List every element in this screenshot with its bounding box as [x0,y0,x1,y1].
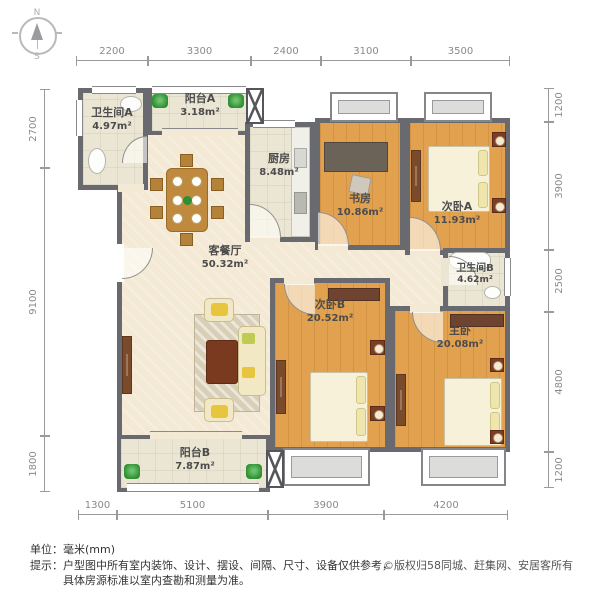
bedroom-b-bay-window [283,448,370,486]
plant-icon [246,464,262,479]
dining-chair [180,154,193,167]
study-desk [324,142,388,172]
study-bay-window [330,92,398,122]
sofa [238,326,266,396]
kitchen-stove [294,192,307,214]
balcony-a-x-window [246,88,264,124]
dim-left-1: 2700 [44,89,45,168]
compass-west-tick [12,32,18,34]
nightstand [492,132,506,147]
dim-left-3: 1800 [44,436,45,492]
bedroom-b-bay-window-glass [291,456,362,478]
compass-south-label: S [34,52,40,62]
coffee-table [206,340,238,384]
pillow [490,382,500,409]
compass-east-tick [56,32,62,34]
bedroom-b-cabinet [276,360,286,414]
bedroom-a-wardrobe [411,150,421,202]
sofa-pillow [242,367,255,378]
armchair [204,298,234,322]
compass-tail [37,40,38,49]
master-cabinet [396,374,406,426]
nightstand [490,430,504,444]
bedroom-a-bay-window [424,92,492,122]
plate [191,195,202,206]
room-label-study: 书房 10.86m² [318,192,402,219]
room-label-bathroom-a: 卫生间A 4.97m² [76,106,148,133]
bathroom-a-window [92,86,136,94]
room-label-balcony-b: 阳台B 7.87m² [160,446,230,473]
plate [191,176,202,187]
master-bay-window [421,448,506,486]
dim-right-2: 3900 [548,122,549,250]
plate [172,176,183,187]
room-label-kitchen: 厨房 8.48m² [248,152,310,179]
room-label-living-dining: 客餐厅 50.32m² [172,244,278,271]
compass-needle-icon [31,23,43,40]
room-label-balcony-a: 阳台A 3.18m² [158,92,242,119]
armchair-cushion [211,405,228,418]
table-plant-icon [183,196,192,205]
study-bay-window-glass [338,100,390,114]
plant-icon [124,464,140,479]
dim-top-4: 3100 [321,60,411,61]
balcony-b-rail-window [127,483,259,492]
tip-line-1: 提示：户型图中所有室内装饰、设计、摆设、间隔、尺寸、设备仅供参考， [30,557,393,573]
pillow [356,408,366,436]
pillow [356,376,366,404]
dim-right-3: 2500 [548,250,549,312]
dim-top-5: 3500 [411,60,510,61]
dim-top-3: 2400 [251,60,321,61]
dim-right-1: 1200 [548,88,549,122]
sofa-pillow [242,333,255,344]
dining-chair [150,206,163,219]
armchair-cushion [211,303,228,316]
balcony-b-sliding-door [150,431,242,439]
dim-top-2: 3300 [148,60,251,61]
nightstand [370,340,385,355]
nightstand [370,406,385,421]
dining-chair [150,178,163,191]
dining-chair [211,178,224,191]
dim-right-4: 4800 [548,312,549,452]
dining-chair [211,206,224,219]
living-cabinet [122,336,132,394]
plate [172,213,183,224]
dim-bottom-3: 3900 [268,514,384,515]
balcony-a-sliding-door [162,128,238,136]
toilet-b [484,286,501,299]
kitchen-counter [291,127,310,237]
dim-right-5: 1200 [548,452,549,488]
tip-line-2: 具体房源标准以室内查勘和测量为准。 [63,572,250,588]
floor-plan: N S [0,0,600,600]
dining-table [166,168,208,232]
dim-left-2: 9100 [44,168,45,436]
room-label-bathroom-b: 卫生间B 4.62m² [442,262,508,287]
dim-top-1: 2200 [76,60,148,61]
master-bay-window-glass [429,456,498,478]
balcony-b-x-window [266,450,284,488]
compass: N S [12,8,62,62]
bedroom-a-bay-window-glass [432,100,484,114]
plate [172,195,183,206]
nightstand [490,358,504,372]
room-label-master-bedroom: 主卧 20.08m² [422,324,498,351]
pillow [478,150,488,176]
room-label-bedroom-a: 次卧A 11.93m² [412,200,502,227]
dim-bottom-1: 1300 [78,514,117,515]
bathroom-a-door-gap [118,184,144,192]
unit-note: 单位：毫米(mm) [30,541,115,557]
room-label-bedroom-b: 次卧B 20.52m² [292,298,368,325]
plate [191,213,202,224]
dim-bottom-2: 5100 [117,514,268,515]
copyright-note: ©版权归58同城、赶集网、安居客所有 [383,557,573,573]
armchair [204,398,234,422]
dim-bottom-4: 4200 [384,514,508,515]
sink-a [88,148,106,174]
